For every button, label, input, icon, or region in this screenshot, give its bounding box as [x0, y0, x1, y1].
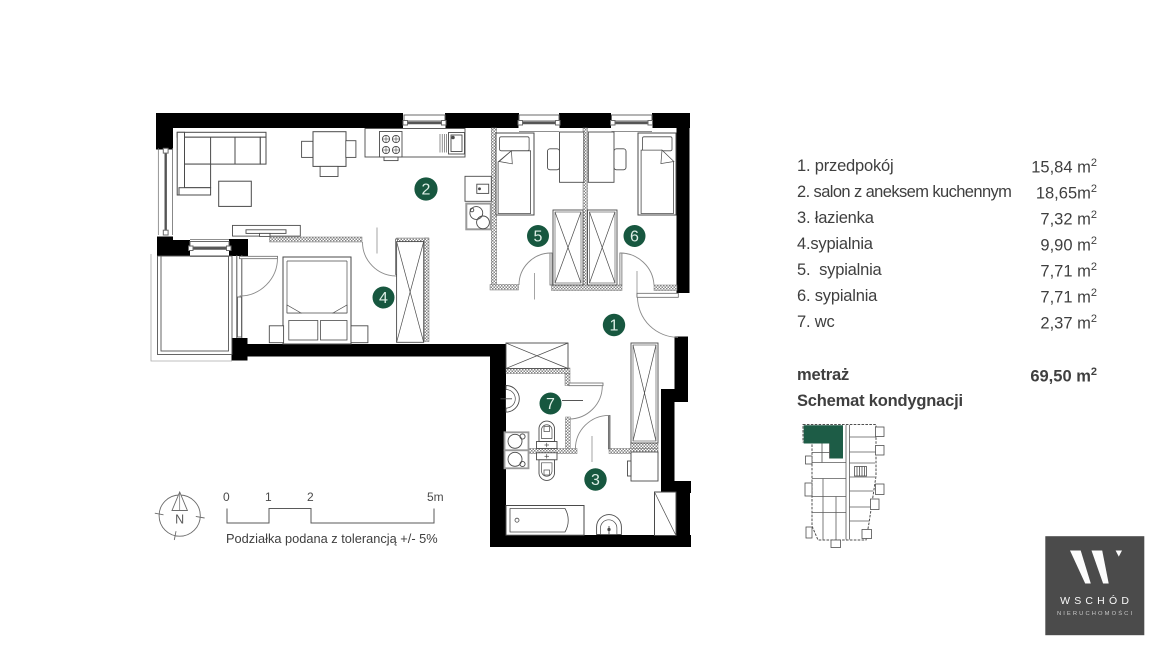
svg-text:6: 6	[630, 229, 639, 246]
svg-text:1: 1	[610, 318, 619, 335]
svg-text:4: 4	[379, 290, 388, 307]
svg-text:3: 3	[591, 472, 600, 489]
svg-text:2: 2	[422, 182, 431, 199]
svg-text:N: N	[175, 513, 184, 527]
svg-text:5: 5	[534, 229, 543, 246]
svg-text:7: 7	[546, 396, 555, 413]
